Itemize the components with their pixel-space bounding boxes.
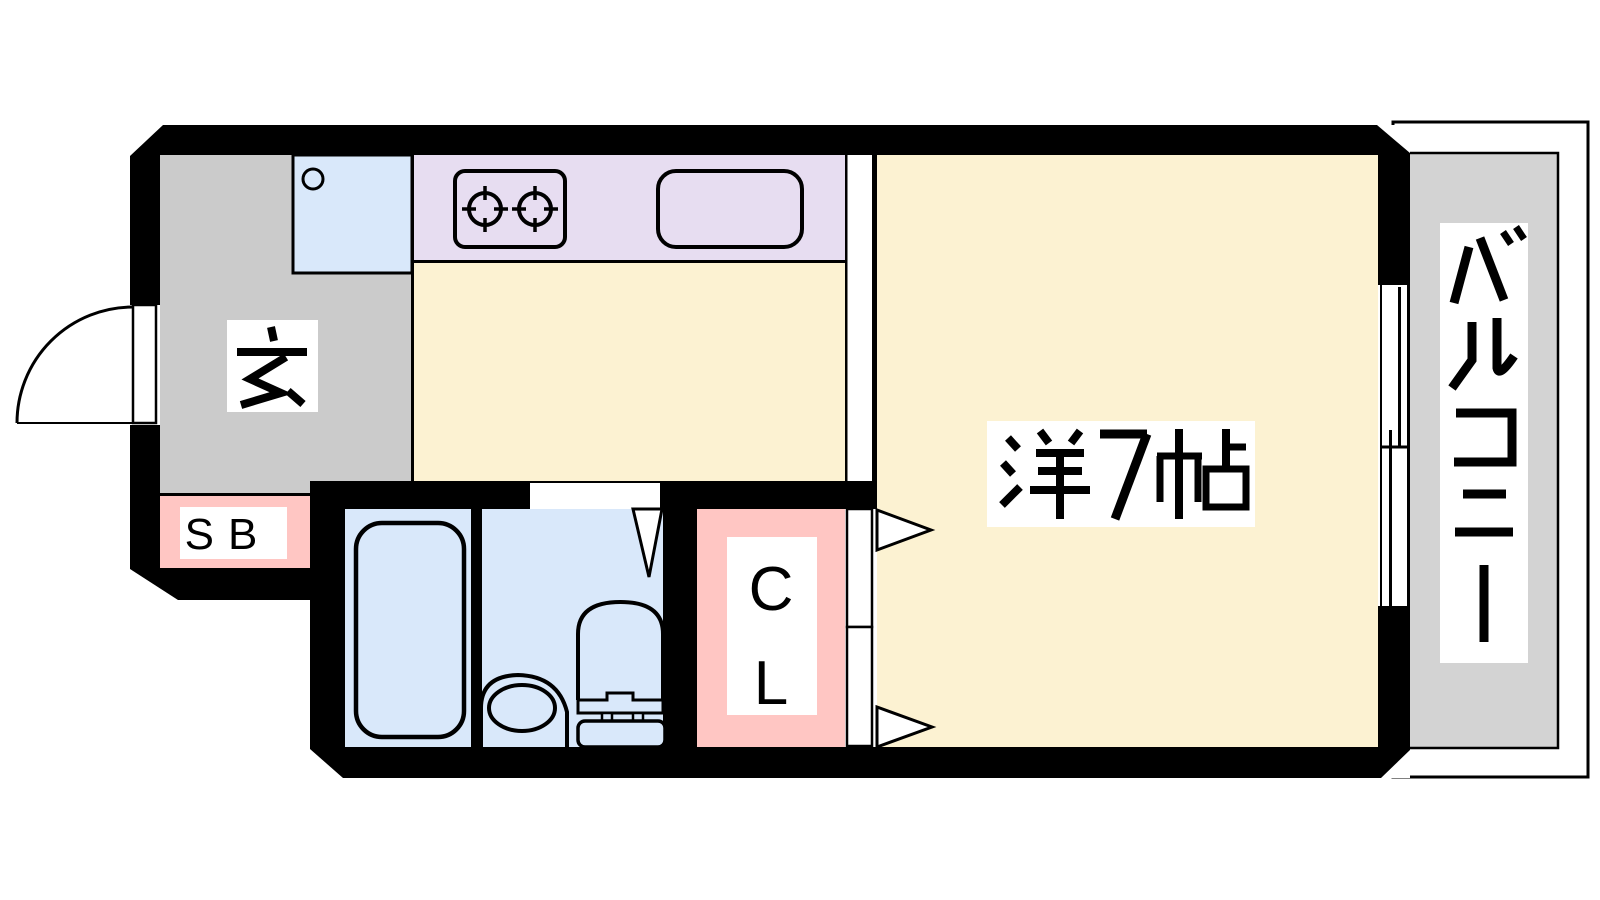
closet-label: C L bbox=[727, 537, 817, 718]
entrance-label bbox=[227, 320, 318, 412]
washbasin bbox=[481, 675, 567, 747]
closet-label-l: L bbox=[754, 649, 788, 718]
closet-label-c: C bbox=[749, 555, 794, 624]
entrance-door bbox=[17, 305, 160, 425]
balcony-label bbox=[1440, 223, 1528, 663]
balcony-window bbox=[1380, 285, 1410, 606]
toilet bbox=[578, 602, 665, 747]
shoe-box-label-text: SB bbox=[185, 510, 272, 559]
bathtub bbox=[356, 523, 464, 737]
washing-machine-pan bbox=[293, 155, 412, 273]
main-room-label bbox=[987, 421, 1255, 527]
floor-plan: SB C L bbox=[0, 0, 1600, 900]
shoe-box-label: SB bbox=[180, 507, 287, 559]
toilet-tank bbox=[578, 721, 665, 747]
